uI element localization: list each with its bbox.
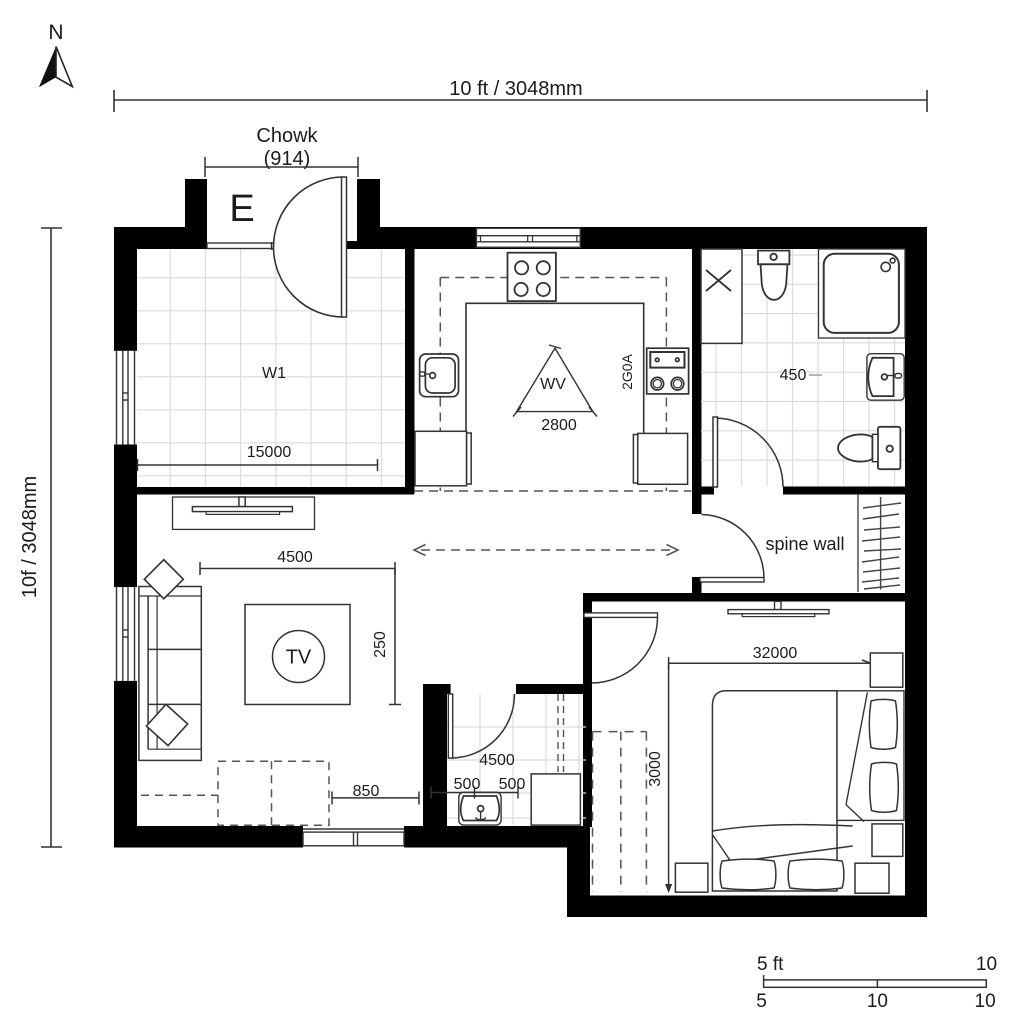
- svg-text:2G0A: 2G0A: [619, 353, 635, 389]
- svg-text:250: 250: [372, 631, 389, 658]
- svg-text:spine wall: spine wall: [765, 534, 844, 554]
- svg-text:450: 450: [780, 367, 807, 384]
- svg-text:5 ft: 5 ft: [757, 954, 784, 975]
- svg-text:10 ft / 3048mm: 10 ft / 3048mm: [449, 78, 582, 100]
- svg-text:5: 5: [756, 991, 767, 1012]
- svg-text:N: N: [48, 21, 63, 44]
- svg-text:10: 10: [867, 991, 888, 1012]
- svg-text:2800: 2800: [541, 417, 577, 434]
- svg-text:TV: TV: [286, 647, 312, 669]
- svg-text:10f / 3048mm: 10f / 3048mm: [19, 476, 41, 598]
- svg-text:32000: 32000: [753, 645, 798, 662]
- svg-text:W1: W1: [262, 365, 286, 382]
- svg-text:4500: 4500: [479, 752, 515, 769]
- svg-text:10: 10: [976, 954, 997, 975]
- svg-text:4500: 4500: [277, 549, 313, 566]
- svg-text:500: 500: [499, 776, 526, 793]
- svg-text:WV: WV: [540, 376, 566, 393]
- svg-text:10: 10: [975, 991, 996, 1012]
- svg-text:500: 500: [454, 776, 481, 793]
- svg-text:15000: 15000: [247, 444, 292, 461]
- svg-text:3000: 3000: [647, 751, 664, 787]
- svg-text:E: E: [229, 188, 254, 230]
- svg-text:Chowk: Chowk: [256, 125, 318, 147]
